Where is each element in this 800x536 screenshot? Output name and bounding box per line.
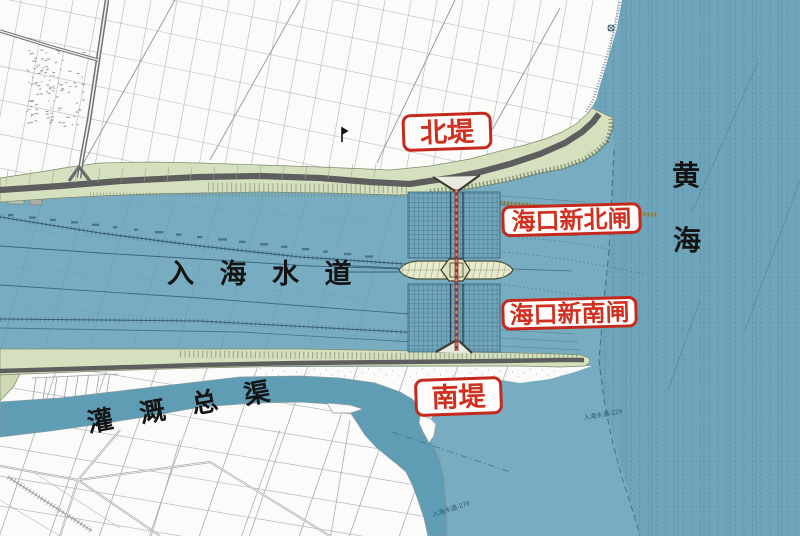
svg-text:南堤: 南堤: [431, 381, 487, 413]
svg-text:黄: 黄: [672, 160, 700, 191]
svg-text:入海水道: 入海水道: [167, 258, 377, 289]
svg-text:北堤: 北堤: [420, 117, 476, 149]
svg-text:海: 海: [673, 225, 701, 256]
svg-text:海口新北闸: 海口新北闸: [511, 205, 632, 236]
svg-text:海口新南闸: 海口新南闸: [509, 298, 630, 329]
